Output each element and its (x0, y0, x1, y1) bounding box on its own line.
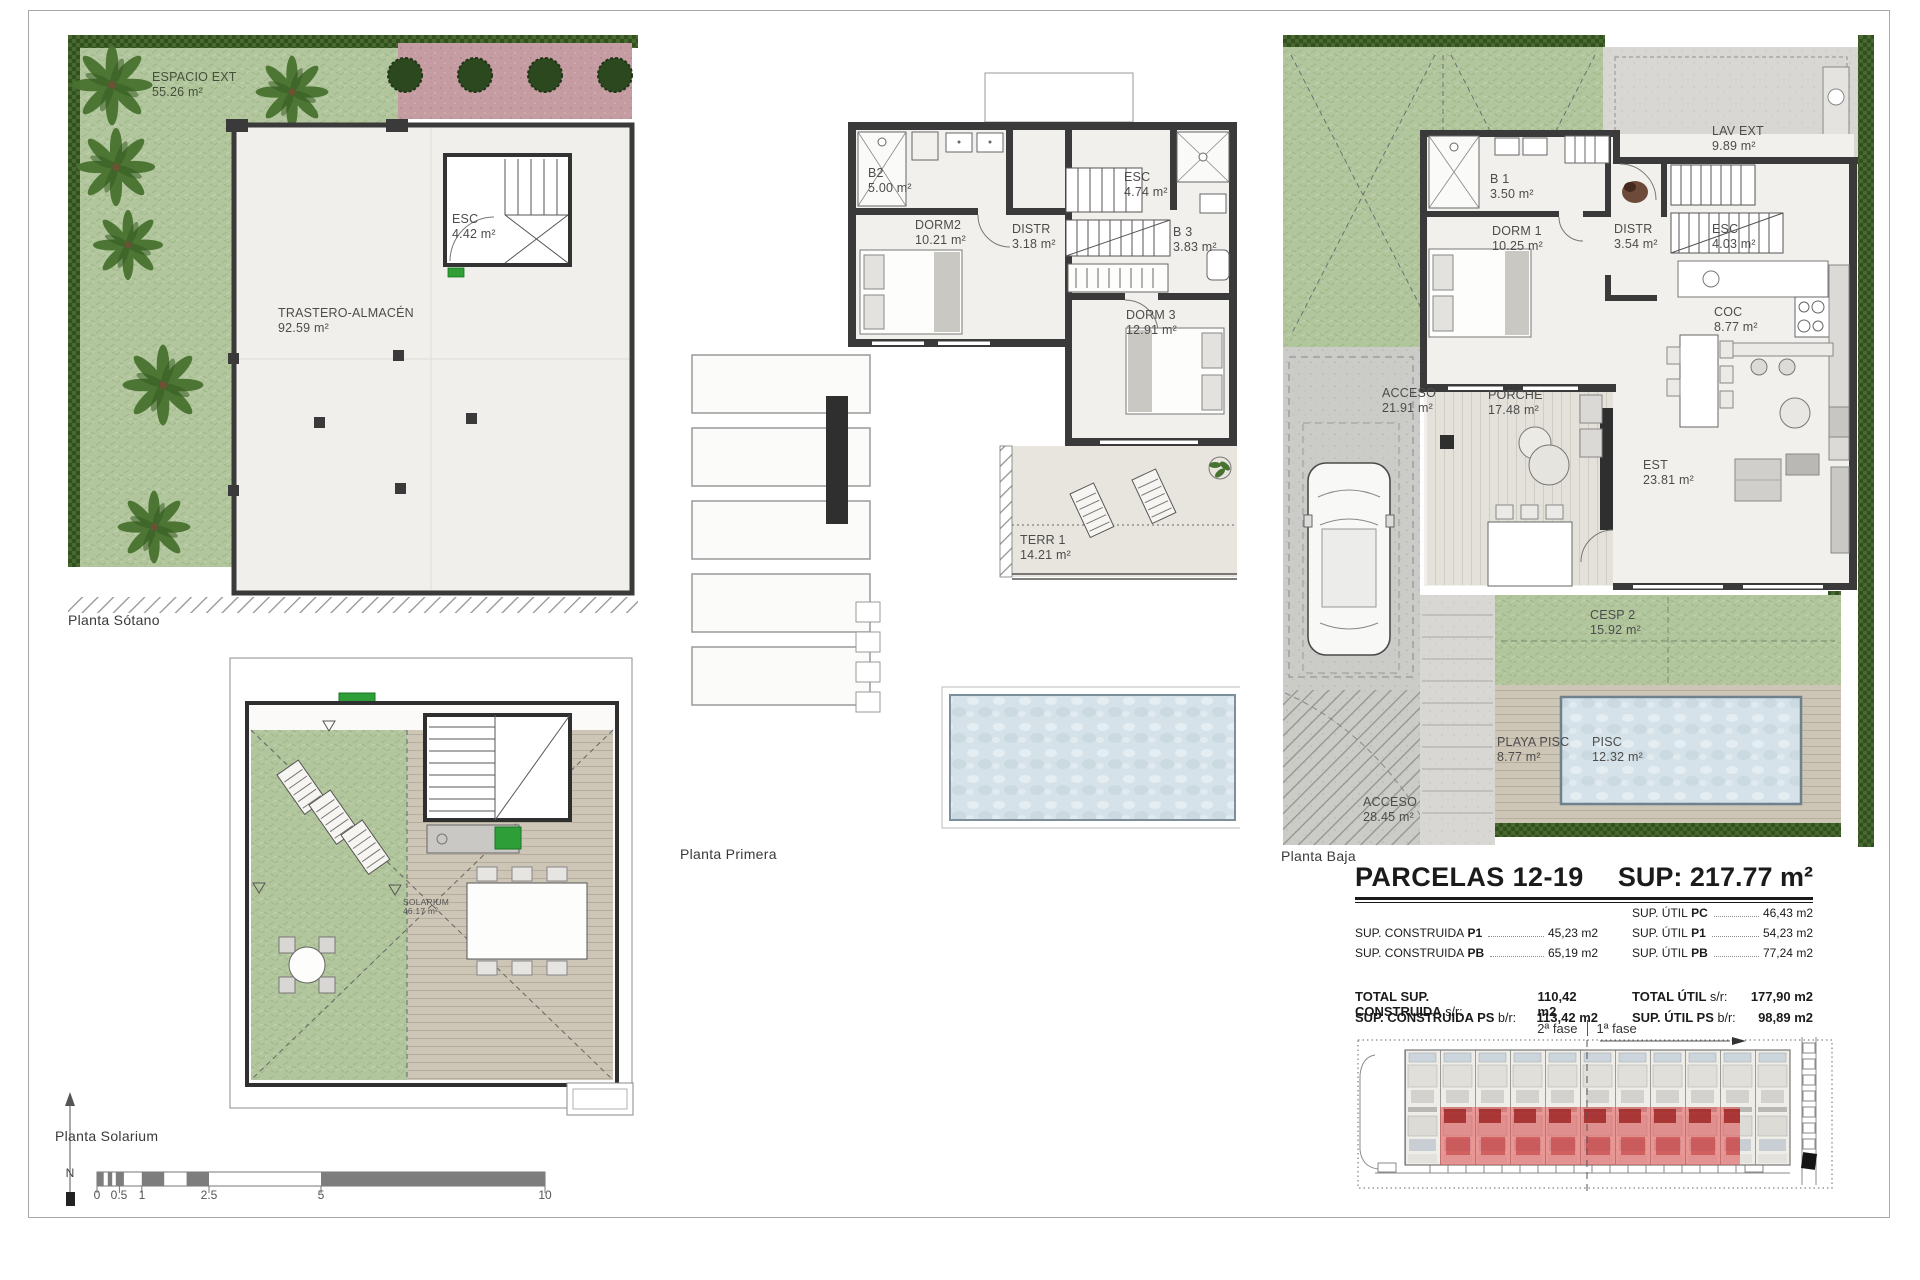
row-value: 46,43 m2 (1763, 906, 1813, 920)
gap (1355, 966, 1598, 989)
plan-title-sotano: Planta Sótano (68, 612, 160, 628)
constructed-column: SUP. CONSTRUIDA P1 45,23 m2 SUP. CONSTRU… (1355, 906, 1598, 1031)
table-row: SUP. ÚTIL PB 77,24 m2 (1632, 946, 1813, 966)
room-area: 17.48 m² (1488, 403, 1543, 418)
site-plan-drawing (1350, 1035, 1865, 1215)
staircase (425, 715, 570, 820)
room-label-acceso-rear: ACCESO28.45 m² (1363, 795, 1417, 826)
table-row: SUP. CONSTRUIDA PB 65,19 m2 (1355, 946, 1598, 966)
dotted-leader (1714, 956, 1759, 957)
north-pointer-small (1600, 1037, 1746, 1045)
row-value: 54,23 m2 (1763, 926, 1813, 940)
header-rule (1355, 897, 1813, 903)
lawn-cesp2 (1495, 595, 1841, 685)
phase-labels: 2ª fase 1ª fase (1387, 1020, 1787, 1036)
room-area: 3.83 m² (1173, 240, 1217, 255)
room-label-distr-p1: DISTR3.18 m² (1012, 222, 1056, 253)
room-name: PISC (1592, 735, 1643, 750)
room-label-esc-pb: ESC4.03 m² (1712, 222, 1756, 253)
ground-floor-plan-drawing (1283, 35, 1878, 850)
table-row: SUP. CONSTRUIDA P1 45,23 m2 (1355, 926, 1598, 946)
scale-tick-1: 1 (139, 1188, 146, 1202)
room-area: 8.77 m² (1497, 750, 1569, 765)
scale-tick-10: 10 (538, 1188, 551, 1202)
row-label-text: SUP. CONSTRUIDA (1355, 926, 1464, 940)
room-label-esc-p1: ESC4.74 m² (1124, 170, 1168, 201)
row-label-text: SUP. CONSTRUIDA (1355, 946, 1464, 960)
door-tag (448, 268, 464, 277)
room-label-coc: COC8.77 m² (1714, 305, 1758, 336)
row-key: PC (1691, 906, 1708, 920)
room-label-esc-sotano: ESC4.42 m² (452, 212, 496, 243)
room-area: 4.42 m² (452, 227, 496, 242)
row-label-text: SUP. ÚTIL (1632, 926, 1688, 940)
scale-tick-25: 2.5 (201, 1188, 218, 1202)
room-area: 15.92 m² (1590, 623, 1641, 638)
room-name: DISTR (1614, 222, 1658, 237)
room-name: CESP 2 (1590, 608, 1641, 623)
room-name: TERR 1 (1020, 533, 1071, 548)
row-value: 77,24 m2 (1763, 946, 1813, 960)
row-value: 45,23 m2 (1548, 926, 1598, 940)
room-area: 23.81 m² (1643, 473, 1694, 488)
room-name: EST (1643, 458, 1694, 473)
room-name: ESC (452, 212, 496, 227)
table-row: SUP. ÚTIL P1 54,23 m2 (1632, 926, 1813, 946)
room-name: ESC (1712, 222, 1756, 237)
room-label-dorm2: DORM210.21 m² (915, 218, 966, 249)
room-area: 4.74 m² (1124, 185, 1168, 200)
section-hatch (68, 597, 638, 613)
room-label-pisc: PISC12.32 m² (1592, 735, 1643, 766)
room-area: 3.18 m² (1012, 237, 1056, 252)
room-name: ESC (1124, 170, 1168, 185)
row-label: TOTAL ÚTIL s/r: (1632, 989, 1727, 1004)
planter-box (567, 1083, 633, 1115)
room-label-cesp2: CESP 215.92 m² (1590, 608, 1641, 639)
swimming-pool (942, 687, 1240, 828)
scale-tick-5: 5 (318, 1188, 325, 1202)
room-name: TRASTERO-ALMACÉN (278, 306, 414, 321)
dotted-leader (1488, 936, 1544, 937)
table-row: SUP. ÚTIL PC 46,43 m2 (1632, 906, 1813, 926)
row-value: 177,90 m2 (1751, 989, 1813, 1004)
dining-table (467, 867, 587, 975)
room-label-terr1: TERR 114.21 m² (1020, 533, 1071, 564)
solarium-plan-drawing (227, 655, 642, 1125)
phase-2-label: 2ª fase (1387, 1021, 1587, 1036)
row-suffix: s/r: (1710, 990, 1727, 1004)
room-area: 10.25 m² (1492, 239, 1543, 254)
total-row: TOTAL ÚTIL s/r: 177,90 m2 (1632, 989, 1813, 1010)
bed-dorm2 (860, 250, 962, 334)
room-name: PORCHE (1488, 388, 1543, 403)
row-label-text: TOTAL ÚTIL (1632, 989, 1706, 1004)
room-area: 4.03 m² (1712, 237, 1756, 252)
north-label: N (66, 1166, 75, 1180)
gap (1632, 966, 1813, 989)
room-label-dorm1: DORM 110.25 m² (1492, 224, 1543, 255)
room-name: ACCESO (1363, 795, 1417, 810)
room-label-est: EST23.81 m² (1643, 458, 1694, 489)
scale-tick-0: 0 (94, 1188, 101, 1202)
room-area: 3.50 m² (1490, 187, 1534, 202)
bed-dorm1 (1429, 249, 1531, 337)
dotted-leader (1490, 956, 1544, 957)
highlighted-parcels-12-19 (1440, 1107, 1740, 1165)
room-area: 9.89 m² (1712, 139, 1764, 154)
room-area: 12.91 m² (1126, 323, 1177, 338)
row-key: PB (1691, 946, 1708, 960)
room-area: 55.26 m² (152, 85, 237, 100)
solarium-lawn (251, 730, 407, 1080)
scale-tick-05: 0.5 (111, 1188, 128, 1202)
room-area: 12.32 m² (1592, 750, 1643, 765)
plan-title-baja: Planta Baja (1281, 848, 1356, 864)
room-name: DORM 3 (1126, 308, 1177, 323)
plan-title-solarium: Planta Solarium (55, 1128, 158, 1144)
row-label: SUP. ÚTIL PB (1632, 946, 1708, 960)
row-label: SUP. CONSTRUIDA P1 (1355, 926, 1482, 940)
room-label-distr-pb: DISTR3.54 m² (1614, 222, 1658, 253)
architectural-plan-sheet: { "sheet": { "north_label": "N" }, "plan… (0, 0, 1920, 1280)
room-name: PLAYA PISC (1497, 735, 1569, 750)
room-area: 14.21 m² (1020, 548, 1071, 563)
room-label-lav-ext: LAV EXT9.89 m² (1712, 124, 1764, 155)
room-area: 8.77 m² (1714, 320, 1758, 335)
stain-artifact (1622, 181, 1648, 203)
room-area: 5.00 m² (868, 181, 912, 196)
room-name: B 1 (1490, 172, 1534, 187)
room-name: DISTR (1012, 222, 1056, 237)
room-name: DORM 1 (1492, 224, 1543, 239)
row-key: P1 (1467, 926, 1482, 940)
room-name: ESPACIO EXT (152, 70, 237, 85)
room-area: 92.59 m² (278, 321, 414, 336)
plan-title-primera: Planta Primera (680, 846, 777, 862)
total-row: TOTAL SUP. CONSTRUIDA s/r: 110,42 m2 (1355, 989, 1598, 1010)
wardrobe (1068, 264, 1168, 292)
room-label-playa-pisc: PLAYA PISC8.77 m² (1497, 735, 1569, 766)
summary-header: PARCELAS 12-19 SUP: 217.77 m² (1355, 862, 1813, 893)
room-area: 3.54 m² (1614, 237, 1658, 252)
summary-table: PARCELAS 12-19 SUP: 217.77 m² SUP. CONST… (1355, 862, 1813, 1031)
total-surface: SUP: 217.77 m² (1618, 862, 1813, 893)
row-key: P1 (1691, 926, 1706, 940)
row-label-text: SUP. ÚTIL (1632, 906, 1688, 920)
room-name: COC (1714, 305, 1758, 320)
room-area: 10.21 m² (915, 233, 966, 248)
room-area: 21.91 m² (1382, 401, 1436, 416)
parcels-title: PARCELAS 12-19 (1355, 862, 1584, 893)
outdoor-kitchen (427, 825, 521, 853)
row-label: SUP. CONSTRUIDA PB (1355, 946, 1484, 960)
room-label-b1: B 13.50 m² (1490, 172, 1534, 203)
room-name: ACCESO (1382, 386, 1436, 401)
north-arrow (60, 1090, 90, 1220)
room-label-porche: PORCHE17.48 m² (1488, 388, 1543, 419)
row-label: SUP. ÚTIL PC (1632, 906, 1708, 920)
room-label-espacio-ext: ESPACIO EXT55.26 m² (152, 70, 237, 101)
dotted-leader (1712, 936, 1759, 937)
spacer-row (1355, 906, 1598, 926)
room-label-b3: B 33.83 m² (1173, 225, 1217, 256)
scale-bar (90, 1168, 560, 1208)
room-name: B2 (868, 166, 912, 181)
row-key: PB (1467, 946, 1484, 960)
room-label-trastero: TRASTERO-ALMACÉN92.59 m² (278, 306, 414, 337)
side-wall (826, 396, 848, 524)
useful-column: SUP. ÚTIL PC 46,43 m2 SUP. ÚTIL P1 54,23… (1632, 906, 1813, 1031)
row-label-text: SUP. ÚTIL (1632, 946, 1688, 960)
room-area: 28.45 m² (1363, 810, 1417, 825)
room-label-dorm3: DORM 312.91 m² (1126, 308, 1177, 339)
row-label: SUP. ÚTIL P1 (1632, 926, 1706, 940)
road-marking (1801, 1152, 1817, 1170)
room-label-acceso-front: ACCESO21.91 m² (1382, 386, 1436, 417)
roof-outline (985, 73, 1133, 122)
hall-closet (1565, 136, 1609, 163)
room-name: LAV EXT (1712, 124, 1764, 139)
room-area: 46.17 m² (403, 907, 449, 916)
room-name: DORM2 (915, 218, 966, 233)
phase-1-label: 1ª fase (1588, 1021, 1788, 1036)
bed-dorm3 (1126, 328, 1224, 414)
room-name: B 3 (1173, 225, 1217, 240)
dotted-leader (1714, 916, 1759, 917)
room-label-solarium: SOLARIUM46.17 m² (403, 898, 449, 917)
room-label-b2: B25.00 m² (868, 166, 912, 197)
side-steps (1420, 595, 1495, 845)
row-value: 65,19 m2 (1548, 946, 1598, 960)
car-icon (1304, 463, 1394, 655)
